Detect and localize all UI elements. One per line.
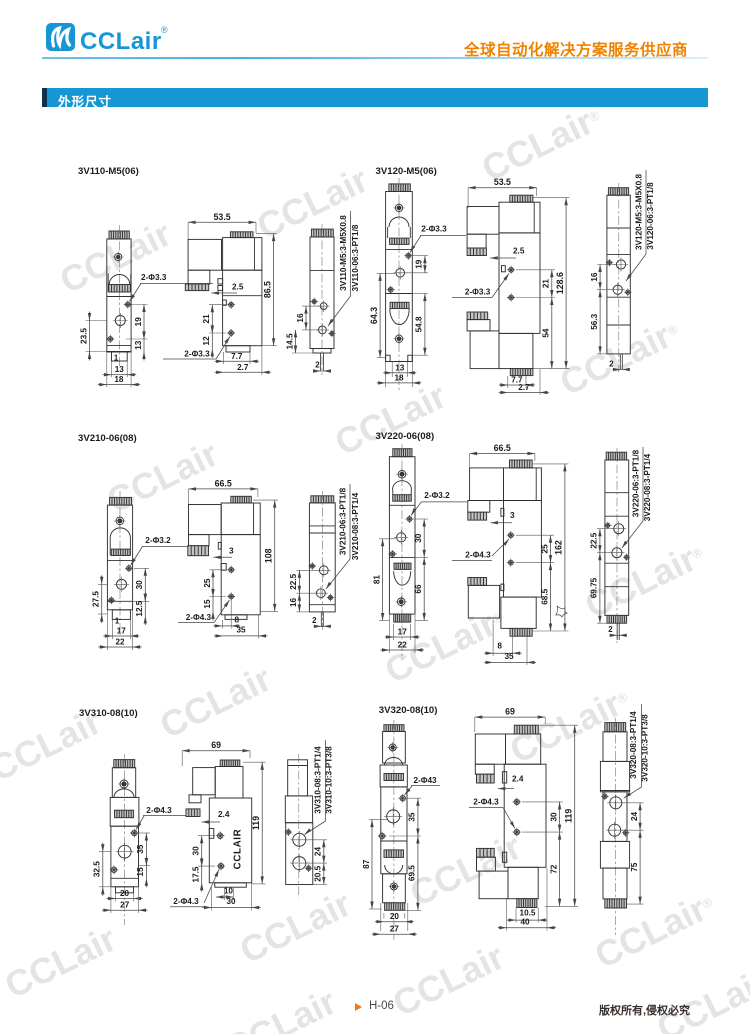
- svg-text:13: 13: [395, 363, 405, 372]
- svg-text:23.5: 23.5: [79, 328, 88, 344]
- svg-text:2-Φ4.3: 2-Φ4.3: [473, 798, 499, 807]
- svg-text:3V210-08:3-PT1/4: 3V210-08:3-PT1/4: [351, 492, 360, 560]
- svg-text:3V110-M5:3-M5X0.8: 3V110-M5:3-M5X0.8: [339, 215, 348, 291]
- svg-text:66.5: 66.5: [494, 443, 511, 453]
- svg-text:30: 30: [192, 846, 201, 856]
- svg-text:3: 3: [229, 546, 234, 555]
- svg-text:69.75: 69.75: [590, 577, 599, 598]
- svg-text:3V120-M5(06): 3V120-M5(06): [376, 166, 437, 177]
- svg-text:15: 15: [203, 599, 212, 609]
- svg-text:2-Φ4.3: 2-Φ4.3: [186, 613, 212, 622]
- svg-text:2-Φ3.3: 2-Φ3.3: [421, 225, 447, 234]
- svg-text:2.7: 2.7: [518, 383, 530, 392]
- svg-text:3V120-06:3-PT1/8: 3V120-06:3-PT1/8: [646, 182, 655, 250]
- svg-text:53.5: 53.5: [214, 212, 231, 222]
- svg-text:CCLAIR: CCLAIR: [233, 829, 244, 870]
- svg-text:1: 1: [114, 354, 119, 363]
- svg-text:3V210-06:3-PT1/8: 3V210-06:3-PT1/8: [339, 487, 348, 555]
- svg-text:2-Φ3.2: 2-Φ3.2: [145, 536, 171, 545]
- svg-text:2-Φ3.2: 2-Φ3.2: [424, 491, 450, 500]
- svg-text:35: 35: [236, 625, 246, 634]
- svg-text:16: 16: [590, 272, 599, 282]
- svg-text:21: 21: [202, 314, 211, 324]
- svg-text:18: 18: [394, 373, 404, 382]
- svg-text:22.5: 22.5: [590, 532, 599, 548]
- svg-text:87: 87: [362, 859, 371, 869]
- svg-text:64.3: 64.3: [369, 307, 379, 324]
- svg-text:68.5: 68.5: [540, 588, 549, 604]
- svg-text:25: 25: [540, 544, 549, 554]
- svg-text:20.5: 20.5: [314, 865, 323, 881]
- svg-text:128.6: 128.6: [555, 272, 565, 294]
- svg-text:22.5: 22.5: [289, 573, 298, 589]
- svg-text:16: 16: [296, 313, 305, 323]
- svg-text:30: 30: [414, 533, 423, 543]
- svg-text:2: 2: [315, 361, 320, 370]
- svg-text:8: 8: [235, 616, 240, 625]
- svg-text:108: 108: [264, 548, 274, 563]
- svg-text:15: 15: [136, 867, 145, 877]
- svg-text:14.5: 14.5: [285, 333, 294, 349]
- svg-text:30: 30: [549, 812, 558, 822]
- svg-text:7.7: 7.7: [231, 352, 243, 361]
- svg-text:13: 13: [115, 365, 125, 374]
- svg-text:2-Φ3.3: 2-Φ3.3: [184, 350, 210, 359]
- svg-text:12.5: 12.5: [135, 600, 144, 616]
- svg-text:18: 18: [114, 375, 124, 384]
- svg-text:24: 24: [314, 847, 323, 857]
- svg-text:19: 19: [134, 317, 143, 327]
- svg-text:69.5: 69.5: [408, 865, 417, 881]
- svg-text:3V110-06:3-PT1/8: 3V110-06:3-PT1/8: [351, 224, 360, 291]
- svg-text:20: 20: [390, 912, 400, 921]
- svg-text:30: 30: [226, 897, 236, 906]
- svg-text:17: 17: [398, 628, 408, 637]
- svg-text:3V320-08(10): 3V320-08(10): [379, 705, 438, 716]
- svg-text:72: 72: [549, 864, 558, 874]
- svg-text:119: 119: [251, 816, 261, 830]
- svg-text:2: 2: [608, 625, 613, 634]
- svg-text:17.5: 17.5: [192, 866, 201, 882]
- svg-text:16: 16: [289, 598, 298, 608]
- svg-text:30: 30: [135, 580, 144, 590]
- svg-text:20: 20: [120, 889, 130, 898]
- svg-text:3V310-08:3-PT1/4: 3V310-08:3-PT1/4: [313, 746, 322, 814]
- svg-text:19: 19: [415, 259, 424, 269]
- svg-text:119: 119: [564, 809, 574, 823]
- svg-text:3V310-08(10): 3V310-08(10): [79, 708, 138, 719]
- svg-text:81: 81: [372, 575, 381, 585]
- svg-text:69: 69: [211, 740, 221, 750]
- svg-text:2-Φ43: 2-Φ43: [413, 776, 437, 785]
- svg-text:27.5: 27.5: [92, 591, 101, 607]
- svg-text:54.8: 54.8: [415, 316, 424, 332]
- svg-text:32.5: 32.5: [93, 861, 102, 877]
- svg-text:66: 66: [414, 584, 423, 594]
- svg-text:2-Φ4.3: 2-Φ4.3: [146, 806, 172, 815]
- svg-text:3V210-06(08): 3V210-06(08): [78, 433, 137, 444]
- svg-text:22: 22: [398, 641, 408, 650]
- svg-text:2: 2: [609, 360, 614, 369]
- svg-text:1: 1: [115, 617, 120, 626]
- svg-text:40: 40: [520, 918, 530, 927]
- svg-text:3V320-08:3-PT1/4: 3V320-08:3-PT1/4: [629, 711, 638, 779]
- svg-text:54: 54: [542, 328, 551, 338]
- svg-text:3V220-08:3-PT1/4: 3V220-08:3-PT1/4: [643, 453, 652, 521]
- svg-text:3V220-06(08): 3V220-06(08): [376, 431, 435, 442]
- svg-text:3: 3: [510, 511, 515, 520]
- svg-text:69: 69: [505, 707, 515, 717]
- svg-text:56.3: 56.3: [590, 313, 599, 329]
- svg-text:2-Φ3.3: 2-Φ3.3: [141, 273, 167, 282]
- svg-text:86.5: 86.5: [262, 281, 272, 298]
- svg-text:2-Φ4.3: 2-Φ4.3: [173, 897, 199, 906]
- svg-text:75: 75: [630, 862, 639, 872]
- svg-text:10.5: 10.5: [520, 909, 536, 918]
- svg-text:24: 24: [630, 812, 639, 822]
- svg-text:8: 8: [497, 642, 502, 651]
- svg-text:66.5: 66.5: [215, 478, 232, 488]
- svg-text:35: 35: [504, 652, 514, 661]
- svg-text:12: 12: [202, 336, 211, 346]
- svg-text:2.4: 2.4: [512, 775, 524, 784]
- svg-text:25: 25: [203, 578, 212, 588]
- svg-text:2.5: 2.5: [513, 247, 525, 256]
- svg-text:22: 22: [115, 638, 125, 647]
- svg-text:2-Φ4.3: 2-Φ4.3: [465, 551, 491, 560]
- svg-text:53.5: 53.5: [494, 177, 511, 187]
- svg-text:2.7: 2.7: [237, 363, 249, 372]
- svg-text:2.5: 2.5: [232, 283, 244, 292]
- svg-text:2-Φ3.3: 2-Φ3.3: [465, 288, 491, 297]
- svg-text:3V220-06:3-PT1/8: 3V220-06:3-PT1/8: [632, 449, 641, 517]
- svg-text:21: 21: [542, 279, 551, 289]
- svg-text:27: 27: [120, 901, 130, 910]
- svg-text:2.4: 2.4: [218, 810, 230, 819]
- svg-text:17: 17: [117, 627, 127, 636]
- svg-text:13: 13: [134, 340, 143, 350]
- svg-text:10: 10: [224, 887, 234, 896]
- svg-text:162: 162: [554, 540, 564, 555]
- svg-text:27: 27: [390, 925, 400, 934]
- svg-text:3V120-M5:3-M5X0.8: 3V120-M5:3-M5X0.8: [635, 174, 644, 250]
- svg-text:35: 35: [408, 812, 417, 822]
- svg-text:3V110-M5(06): 3V110-M5(06): [78, 166, 139, 177]
- svg-text:35: 35: [136, 844, 145, 854]
- svg-text:2: 2: [312, 616, 317, 625]
